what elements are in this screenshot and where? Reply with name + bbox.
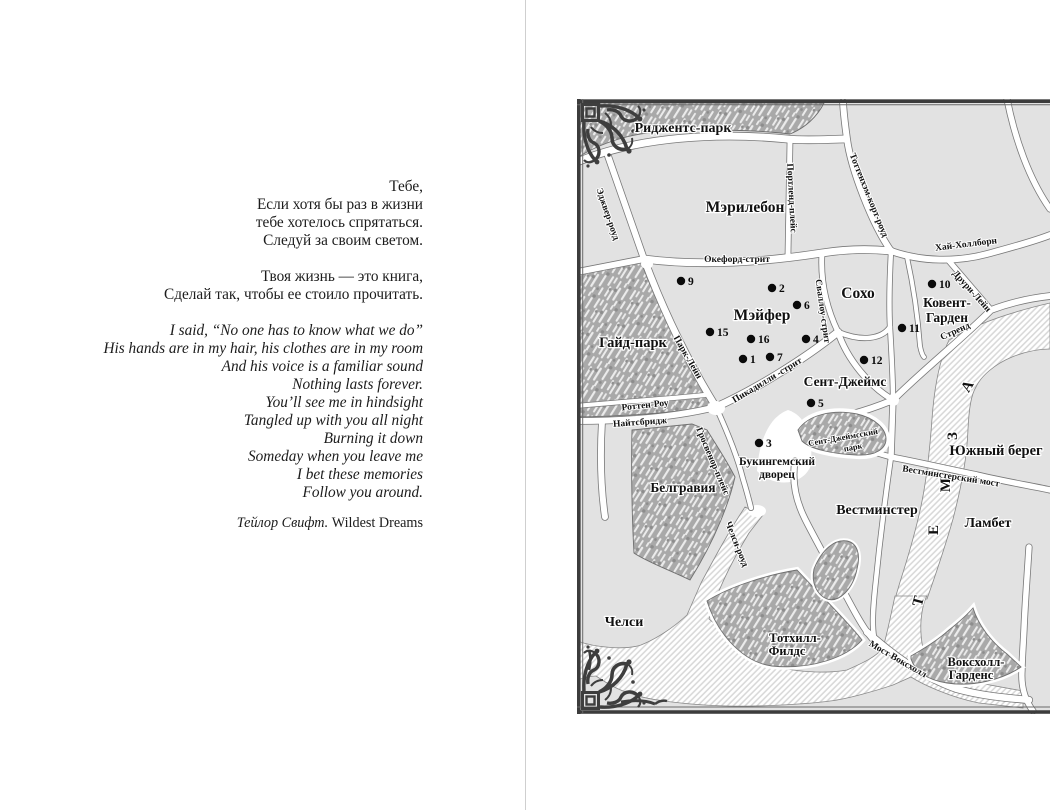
svg-text:Воксхолл-: Воксхолл-	[948, 655, 1005, 669]
svg-text:Риджентс-парк: Риджентс-парк	[635, 121, 733, 136]
svg-text:15: 15	[717, 327, 729, 339]
svg-text:7: 7	[777, 352, 783, 364]
svg-text:Мэйфер: Мэйфер	[734, 307, 791, 324]
svg-text:Южный берег: Южный берег	[949, 443, 1043, 459]
svg-text:3: 3	[766, 438, 772, 450]
svg-text:Белгравия: Белгравия	[650, 480, 715, 495]
svg-text:Ковент-: Ковент-	[923, 295, 971, 310]
svg-text:Окефорд-стрит: Окефорд-стрит	[704, 254, 770, 265]
svg-text:Вестминстер: Вестминстер	[836, 503, 918, 518]
svg-text:2: 2	[779, 283, 785, 295]
svg-text:Сохо: Сохо	[841, 285, 875, 302]
svg-text:З: З	[945, 432, 961, 440]
svg-text:12: 12	[871, 355, 883, 367]
svg-text:11: 11	[909, 323, 920, 335]
svg-text:Ламбет: Ламбет	[965, 516, 1012, 531]
svg-text:Мэрилебон: Мэрилебон	[706, 199, 785, 216]
svg-text:9: 9	[688, 276, 694, 288]
svg-text:дворец: дворец	[759, 469, 795, 481]
svg-text:Тотхилл-: Тотхилл-	[769, 631, 821, 645]
svg-text:1: 1	[750, 354, 756, 366]
svg-text:10: 10	[939, 279, 951, 291]
svg-text:Е: Е	[926, 525, 942, 535]
svg-text:Челси: Челси	[605, 615, 644, 630]
svg-text:Сент-Джеймс: Сент-Джеймс	[804, 374, 887, 389]
svg-text:Филдс: Филдс	[769, 644, 806, 658]
svg-text:Гайд-парк: Гайд-парк	[599, 335, 667, 351]
svg-text:16: 16	[758, 334, 770, 346]
svg-text:5: 5	[818, 398, 824, 410]
svg-text:4: 4	[813, 334, 819, 346]
svg-text:Букингемский: Букингемский	[739, 456, 815, 468]
svg-text:Гарденс: Гарденс	[949, 668, 994, 682]
svg-text:6: 6	[804, 300, 810, 312]
